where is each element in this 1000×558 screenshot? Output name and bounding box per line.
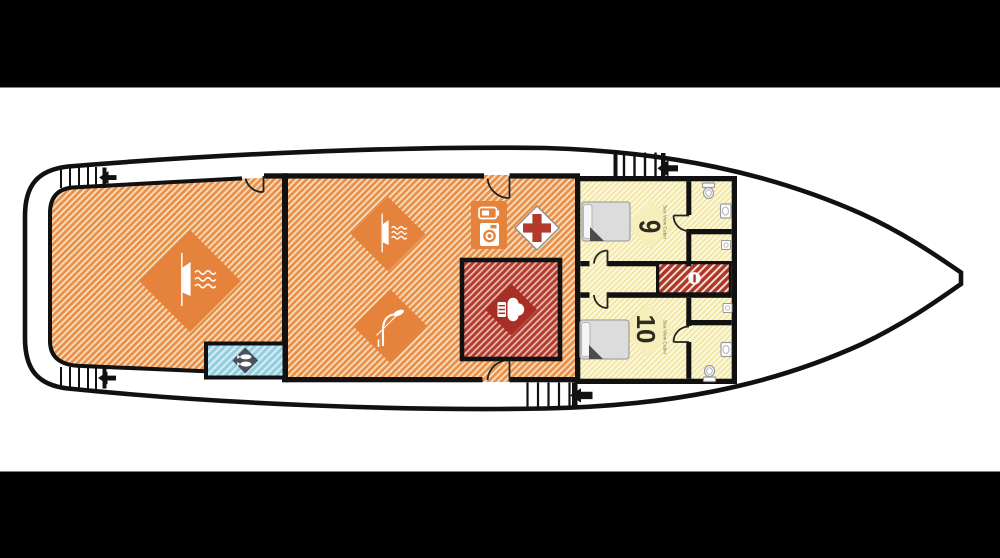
svg-text:9: 9: [632, 220, 666, 233]
svg-text:10: 10: [631, 315, 661, 344]
svg-text:Sea View Cabin: Sea View Cabin: [662, 320, 668, 354]
svg-text:Sea View Cabin: Sea View Cabin: [662, 205, 668, 239]
